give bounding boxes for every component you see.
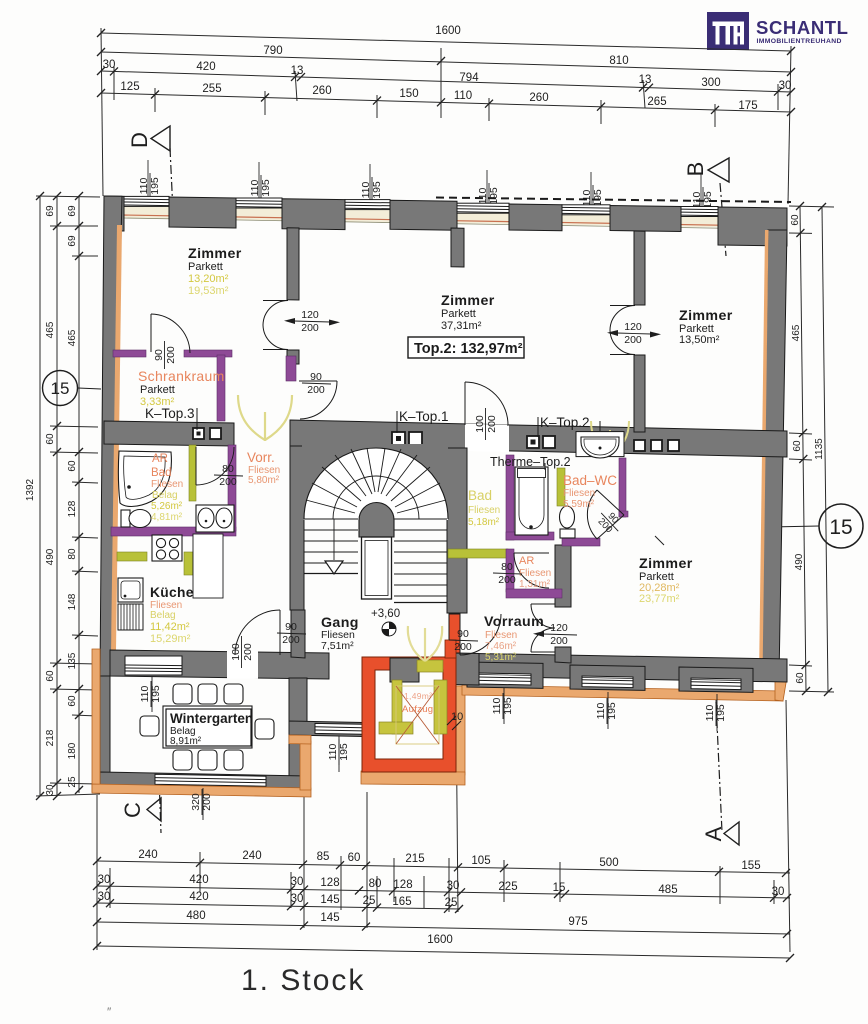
svg-text:790: 790 [263, 45, 282, 57]
svg-text:155: 155 [741, 860, 760, 872]
svg-text:60: 60 [348, 852, 361, 864]
svg-text:148: 148 [67, 593, 78, 610]
svg-text:30: 30 [98, 891, 111, 903]
svg-text:Vorraum: Vorraum [484, 614, 544, 630]
svg-text:1600: 1600 [427, 934, 453, 946]
svg-text:IMMOBILIENTREUHAND: IMMOBILIENTREUHAND [757, 38, 842, 45]
svg-text:225: 225 [498, 881, 517, 893]
svg-text:Parkett: Parkett [188, 261, 223, 273]
svg-text:100: 100 [474, 415, 486, 433]
svg-text:30: 30 [291, 876, 304, 888]
svg-text:300: 300 [701, 77, 720, 89]
svg-text:69: 69 [45, 205, 56, 217]
svg-text:Belag: Belag [152, 490, 178, 501]
svg-text:105: 105 [471, 855, 490, 867]
svg-text:Küche: Küche [150, 585, 194, 600]
svg-text:Wintergarten: Wintergarten [170, 711, 253, 726]
svg-text:Therme–Top.2: Therme–Top.2 [490, 455, 571, 469]
svg-text:90: 90 [310, 371, 322, 383]
svg-text:30: 30 [779, 80, 792, 92]
svg-text:260: 260 [312, 85, 331, 97]
svg-text:19,53m²: 19,53m² [188, 285, 229, 297]
svg-text:200: 200 [165, 346, 177, 364]
svg-text:Bad: Bad [468, 488, 492, 503]
svg-text:4,81m²: 4,81m² [151, 512, 183, 523]
svg-text:465: 465 [791, 324, 802, 341]
svg-text:260: 260 [529, 92, 548, 104]
svg-text:25: 25 [363, 895, 376, 907]
svg-text:200: 200 [624, 334, 642, 346]
svg-text:420: 420 [189, 891, 208, 903]
svg-text:Zimmer: Zimmer [441, 293, 495, 309]
svg-text:794: 794 [459, 72, 479, 84]
svg-text:195: 195 [592, 189, 604, 207]
svg-text:1392: 1392 [25, 478, 36, 501]
svg-text:128: 128 [320, 877, 339, 889]
svg-text:80: 80 [67, 548, 78, 560]
svg-text:Bad: Bad [151, 467, 171, 479]
svg-text:13: 13 [639, 74, 652, 86]
svg-text:1135: 1135 [814, 438, 825, 460]
svg-text:69: 69 [67, 235, 78, 247]
svg-text:60: 60 [795, 672, 806, 684]
svg-text:37,31m²: 37,31m² [441, 320, 482, 332]
svg-text:125: 125 [120, 81, 139, 93]
svg-text:218: 218 [45, 729, 56, 746]
svg-text:K–Top.2: K–Top.2 [540, 415, 590, 430]
svg-text:175: 175 [738, 100, 757, 112]
svg-text:90: 90 [457, 628, 469, 640]
svg-text:Zimmer: Zimmer [639, 556, 693, 572]
svg-text:480: 480 [186, 910, 205, 922]
svg-text:Schrankraum: Schrankraum [138, 368, 225, 384]
svg-text:K–Top.3: K–Top.3 [145, 406, 195, 421]
svg-text:13: 13 [291, 65, 304, 77]
svg-text:265: 265 [647, 96, 666, 108]
svg-text:200: 200 [498, 574, 516, 586]
svg-text:485: 485 [658, 884, 677, 896]
svg-text:7,51m²: 7,51m² [321, 640, 354, 652]
svg-text:Parkett: Parkett [441, 308, 476, 320]
svg-text:5,31m²: 5,31m² [485, 652, 517, 663]
svg-text:200: 200 [242, 643, 254, 661]
svg-text:200: 200 [219, 476, 237, 488]
svg-text:60: 60 [45, 670, 56, 682]
svg-text:13,50m²: 13,50m² [679, 334, 720, 346]
svg-text:Zimmer: Zimmer [679, 308, 733, 324]
svg-text:15: 15 [829, 516, 852, 539]
svg-text:C: C [120, 802, 145, 818]
svg-text:AR: AR [519, 555, 534, 567]
svg-text:Bad–WC: Bad–WC [563, 473, 617, 488]
svg-text:135: 135 [67, 652, 78, 669]
svg-text:200: 200 [486, 415, 498, 433]
svg-text:B: B [683, 162, 708, 177]
svg-text:240: 240 [242, 850, 261, 862]
svg-text:165: 165 [392, 896, 411, 908]
svg-text:D: D [127, 132, 152, 148]
svg-text:Aufzug: Aufzug [402, 704, 433, 715]
svg-text:90: 90 [285, 621, 297, 633]
svg-text:60: 60 [45, 433, 56, 445]
svg-text:Fliesen: Fliesen [563, 488, 595, 499]
svg-text:195: 195 [338, 743, 350, 761]
svg-text:195: 195 [260, 179, 272, 197]
svg-text:Zimmer: Zimmer [188, 246, 242, 262]
svg-text:240: 240 [138, 849, 157, 861]
svg-text:10: 10 [451, 711, 463, 723]
svg-text:200: 200 [307, 384, 325, 396]
svg-text:SCHANTL: SCHANTL [756, 17, 849, 38]
svg-text:120: 120 [550, 622, 568, 634]
svg-text:180: 180 [67, 742, 78, 759]
svg-text:200: 200 [301, 322, 319, 334]
svg-text:215: 215 [405, 853, 424, 865]
svg-text:30: 30 [447, 880, 460, 892]
svg-text:Fliesen: Fliesen [519, 568, 551, 579]
svg-text:975: 975 [568, 916, 587, 928]
svg-text:195: 195 [371, 181, 383, 199]
svg-text:30: 30 [772, 886, 785, 898]
svg-text:30: 30 [45, 784, 56, 796]
svg-text:60: 60 [67, 460, 78, 472]
svg-text:60: 60 [792, 440, 803, 452]
svg-text:128: 128 [393, 879, 412, 891]
svg-text:150: 150 [399, 88, 418, 100]
svg-text:1,49m²: 1,49m² [404, 691, 432, 701]
svg-text:15,29m²: 15,29m² [150, 633, 191, 645]
svg-text:7,46m²: 7,46m² [485, 641, 517, 652]
svg-text:15: 15 [51, 379, 70, 398]
svg-text:5,26m²: 5,26m² [151, 501, 183, 512]
svg-text:13,20m²: 13,20m² [188, 273, 229, 285]
svg-text:195: 195 [488, 187, 500, 205]
svg-text:Belag: Belag [150, 610, 176, 621]
svg-text:Vorr.: Vorr. [247, 450, 275, 465]
svg-text:Top.2: 132,97m²: Top.2: 132,97m² [414, 341, 523, 357]
svg-text:8,91m²: 8,91m² [170, 736, 202, 747]
svg-text:420: 420 [196, 61, 215, 73]
svg-text:465: 465 [45, 321, 56, 338]
svg-text:1600: 1600 [435, 25, 461, 37]
svg-text:200: 200 [282, 634, 300, 646]
svg-text:200: 200 [550, 635, 568, 647]
svg-text:30: 30 [98, 874, 111, 886]
svg-text:15: 15 [553, 882, 566, 894]
svg-text:30: 30 [291, 893, 304, 905]
svg-text:Fliesen: Fliesen [468, 505, 500, 516]
svg-text:11,42m²: 11,42m² [150, 621, 190, 633]
svg-text:120: 120 [624, 321, 642, 333]
svg-text:80: 80 [222, 463, 234, 475]
svg-text:145: 145 [320, 894, 339, 906]
svg-text:465: 465 [67, 329, 78, 346]
svg-text:80: 80 [501, 561, 513, 573]
svg-text:30: 30 [103, 59, 116, 71]
svg-text:110: 110 [454, 90, 472, 102]
svg-text:500: 500 [599, 857, 618, 869]
svg-text:100: 100 [230, 643, 242, 661]
svg-text:85: 85 [317, 851, 330, 863]
svg-text:420: 420 [189, 874, 208, 886]
svg-text:490: 490 [45, 548, 56, 565]
svg-text:5,80m²: 5,80m² [248, 475, 280, 486]
svg-text:25: 25 [445, 897, 458, 909]
svg-text:90: 90 [153, 349, 165, 361]
svg-text:23,77m²: 23,77m² [639, 593, 680, 605]
svg-text:255: 255 [202, 83, 221, 95]
svg-text:490: 490 [794, 553, 805, 570]
svg-text:80: 80 [369, 878, 382, 890]
svg-text:200: 200 [454, 641, 472, 653]
svg-text:1,31m²: 1,31m² [519, 579, 551, 590]
svg-text:145: 145 [320, 912, 339, 924]
svg-text:60: 60 [790, 214, 801, 226]
svg-text:K–Top.1: K–Top.1 [399, 409, 449, 424]
svg-text:25: 25 [67, 776, 78, 788]
svg-text:Fliesen: Fliesen [151, 479, 183, 490]
svg-text:128: 128 [67, 500, 78, 517]
svg-text:69: 69 [67, 205, 78, 217]
svg-text:Fliesen: Fliesen [485, 630, 517, 641]
svg-text:5,59m²: 5,59m² [563, 499, 595, 510]
svg-text:5,18m²: 5,18m² [468, 517, 500, 528]
svg-text:+3,60: +3,60 [371, 608, 400, 620]
svg-text:60: 60 [67, 695, 78, 707]
svg-text:120: 120 [301, 309, 319, 321]
svg-text:AR: AR [152, 453, 168, 465]
svg-text:Parkett: Parkett [140, 384, 175, 396]
svg-text:1. Stock: 1. Stock [241, 964, 365, 997]
svg-text:810: 810 [609, 55, 628, 67]
svg-text:195: 195 [149, 177, 161, 195]
